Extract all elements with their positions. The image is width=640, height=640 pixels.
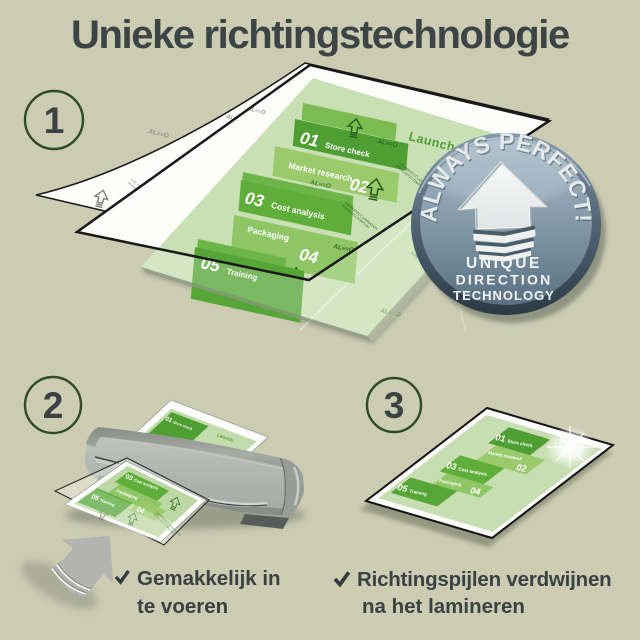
svg-text:DIRECTION: DIRECTION (456, 272, 553, 288)
svg-text:na het lamineren: na het lamineren (362, 595, 525, 618)
svg-text:Richtingspijlen verdwijnen: Richtingspijlen verdwijnen (357, 568, 612, 591)
svg-text:02: 02 (516, 462, 528, 474)
svg-text:Unieke richtingstechnologie: Unieke richtingstechnologie (71, 13, 569, 57)
svg-text:3: 3 (384, 385, 405, 426)
svg-text:01: 01 (298, 128, 321, 151)
svg-text:2: 2 (43, 385, 64, 426)
svg-text:Gemakkelijk in: Gemakkelijk in (137, 567, 281, 590)
svg-text:04: 04 (470, 485, 482, 497)
svg-text:TECHNOLOGY: TECHNOLOGY (453, 288, 555, 303)
svg-text:UNIQUE: UNIQUE (466, 255, 542, 272)
svg-text:te voeren: te voeren (137, 595, 228, 618)
svg-text:1: 1 (44, 100, 65, 141)
